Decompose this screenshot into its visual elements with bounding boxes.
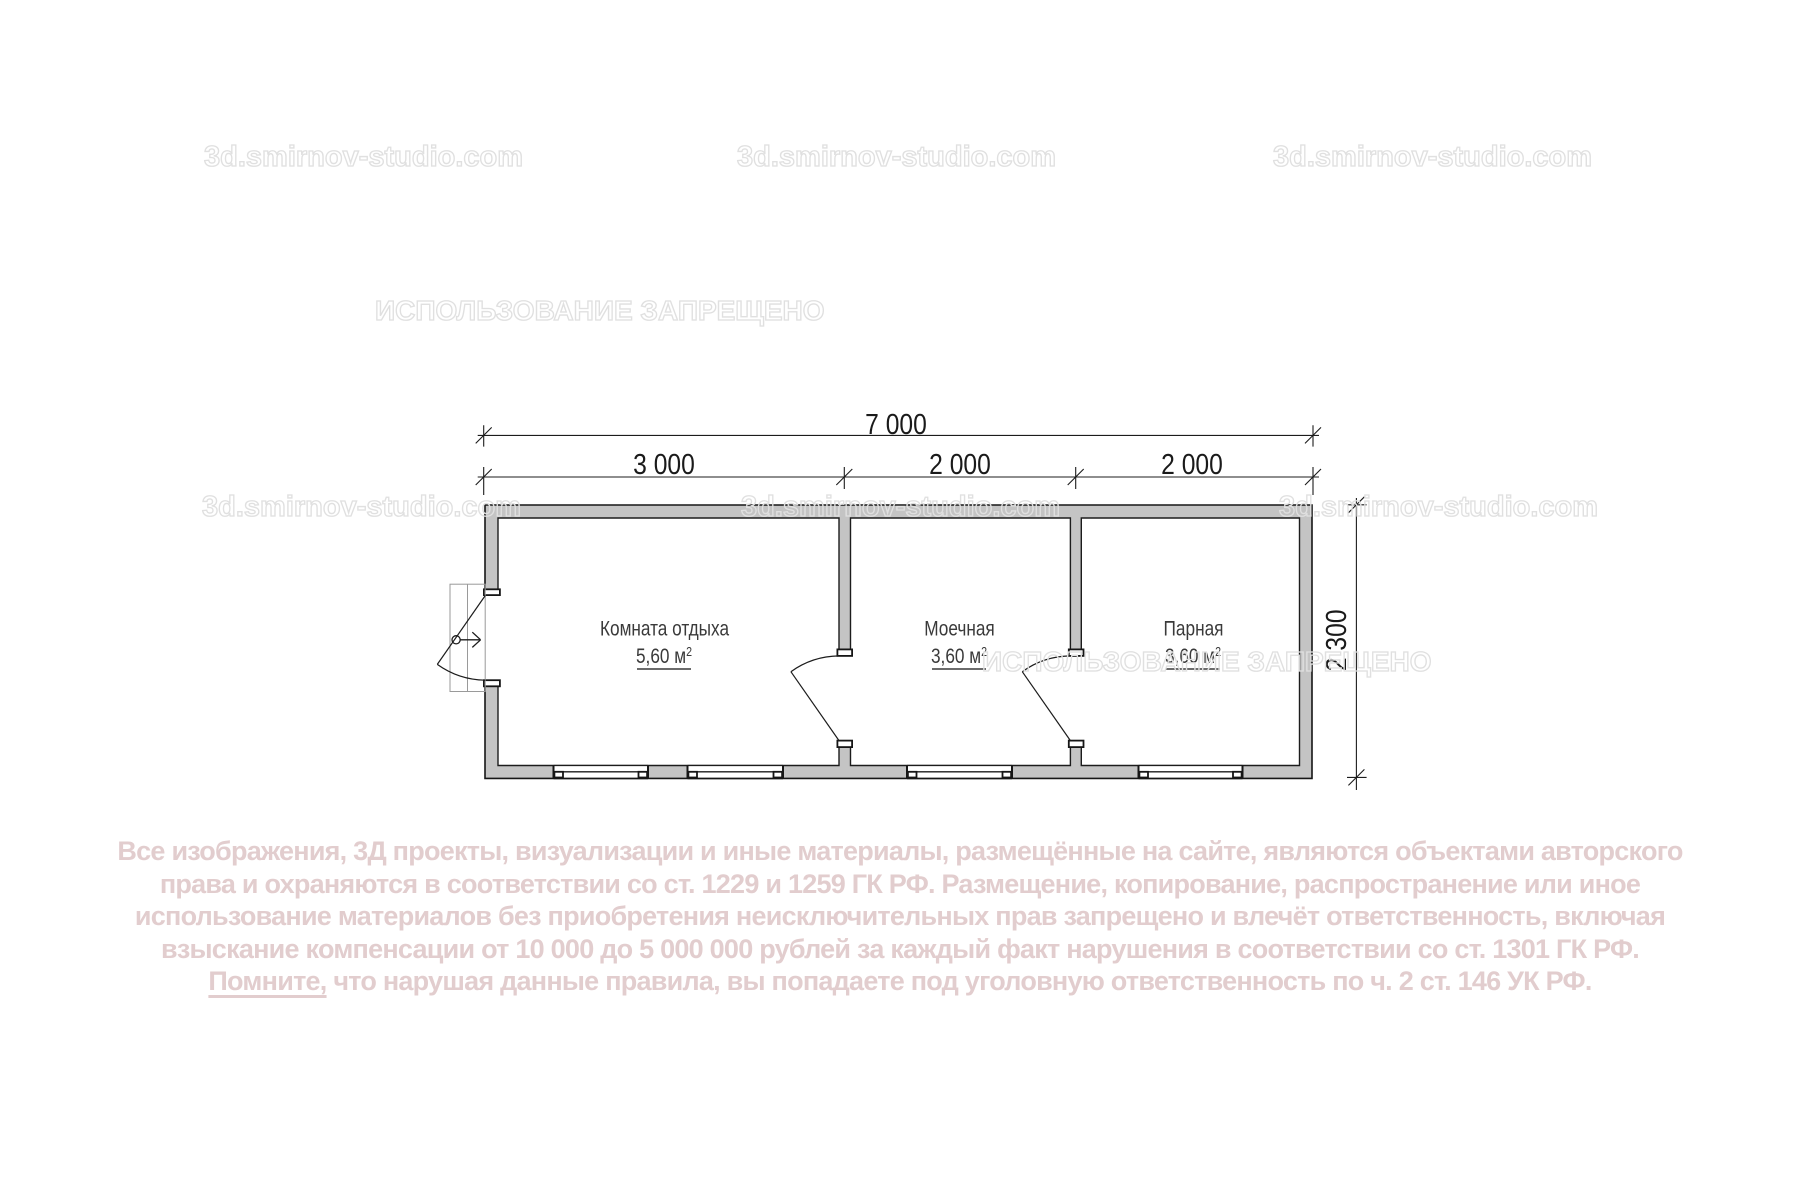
svg-text:3 000: 3 000 bbox=[633, 448, 695, 480]
svg-text:Комната отдыха: Комната отдыха bbox=[600, 618, 729, 641]
svg-text:3,60 м2: 3,60 м2 bbox=[931, 644, 987, 668]
svg-text:2 000: 2 000 bbox=[929, 448, 991, 480]
svg-text:Парная: Парная bbox=[1164, 618, 1224, 641]
svg-text:7 000: 7 000 bbox=[865, 408, 927, 440]
svg-text:2 000: 2 000 bbox=[1161, 448, 1223, 480]
svg-text:Моечная: Моечная bbox=[924, 618, 994, 641]
svg-text:5,60 м2: 5,60 м2 bbox=[636, 644, 692, 668]
